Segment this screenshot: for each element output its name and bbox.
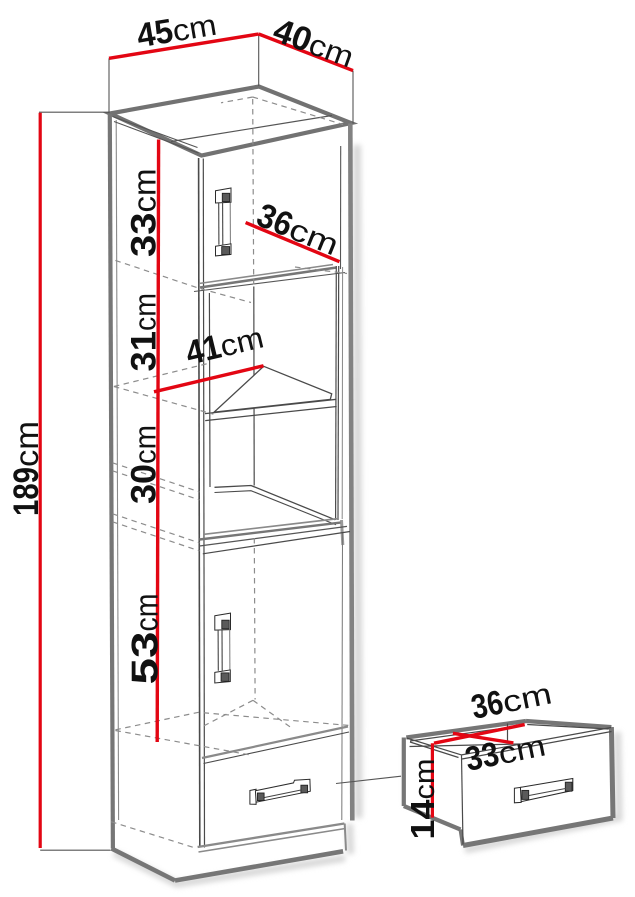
svg-text:53cm: 53cm	[125, 594, 166, 685]
svg-text:30cm: 30cm	[125, 425, 164, 504]
svg-text:189cm: 189cm	[7, 421, 46, 516]
svg-text:36cm: 36cm	[252, 196, 345, 263]
svg-text:36cm: 36cm	[468, 673, 555, 726]
svg-text:40cm: 40cm	[268, 11, 359, 75]
svg-text:33cm: 33cm	[125, 169, 164, 258]
svg-text:14cm: 14cm	[404, 759, 441, 840]
svg-text:45cm: 45cm	[134, 5, 219, 56]
svg-text:31cm: 31cm	[125, 293, 164, 372]
